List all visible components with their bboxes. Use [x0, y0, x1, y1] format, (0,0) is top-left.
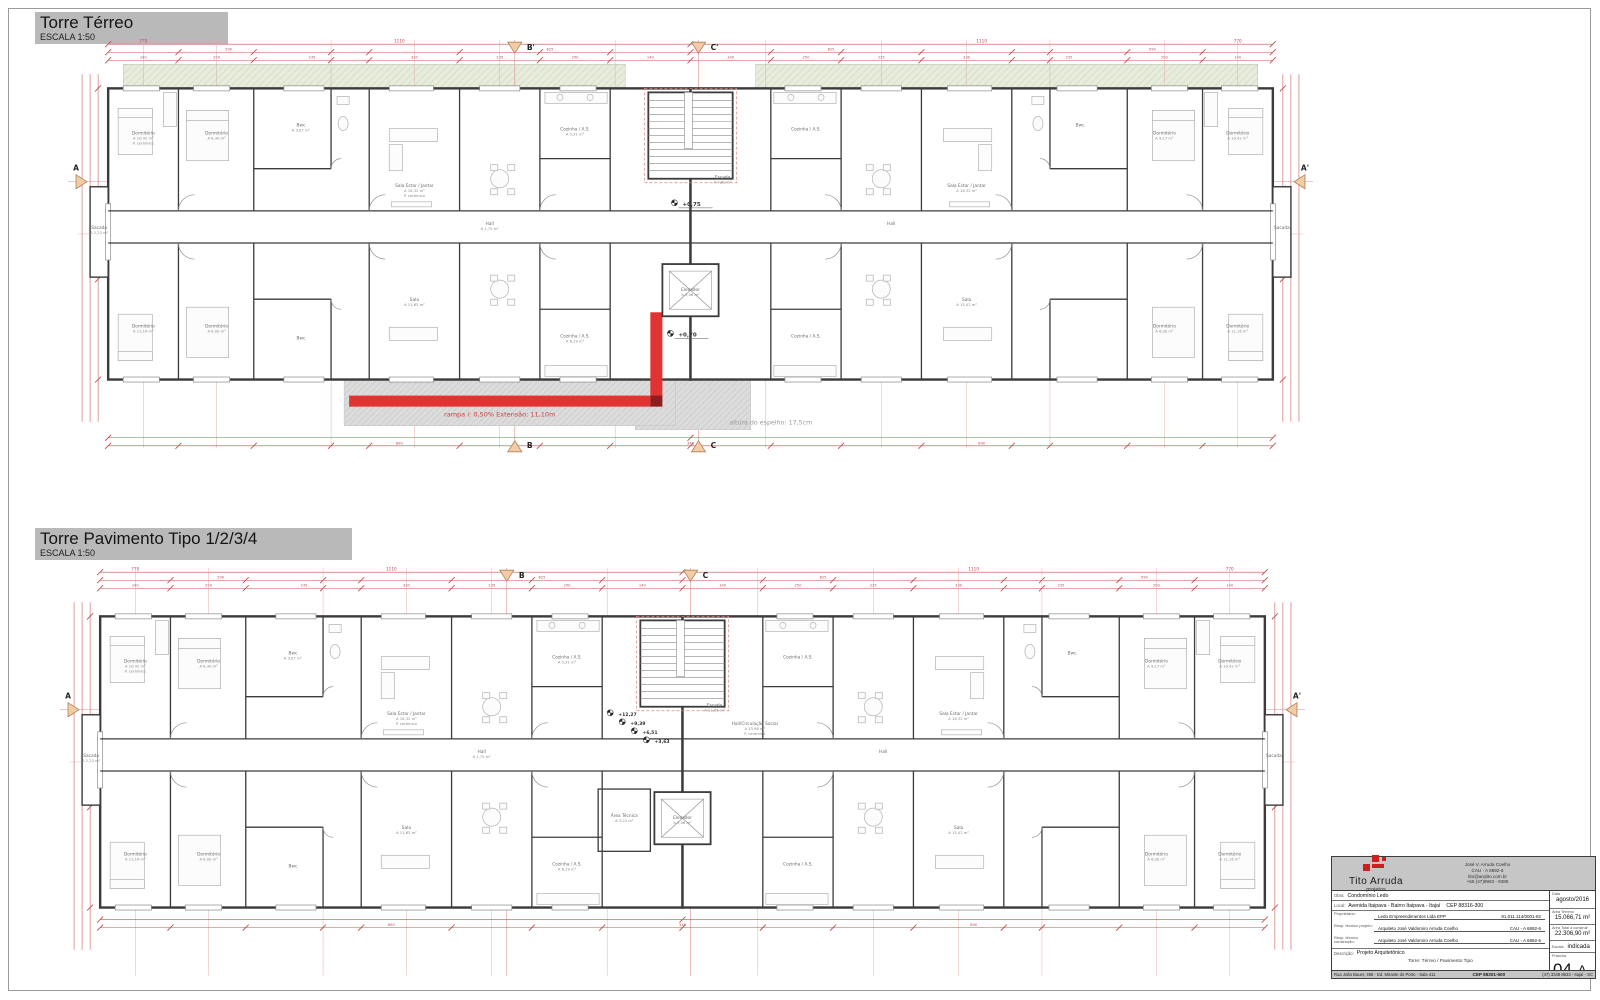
tipo-plan-drawing: Escada A 11,95 m² Hall/Circulação Social…: [60, 566, 1305, 983]
section-letter: A: [65, 692, 71, 701]
scale-label: Escala:: [1552, 945, 1564, 949]
sheet-number-cell: Prancha 04deA: [1550, 953, 1595, 983]
lot-area-cell: Área Terreno 15.066,71 m²: [1550, 909, 1595, 925]
section-letter: A': [1293, 692, 1301, 701]
sheet-content: Torre: Térreo / Pavimento Tipo: [1332, 959, 1549, 964]
section-letter: C: [703, 571, 709, 580]
resp-construcao-cau: CAU - A 6892-6: [1510, 938, 1541, 943]
local-cep: CEP 88316-300: [1446, 903, 1483, 909]
title-block: Tito Arruda projetos José V. Arruda Coel…: [1331, 856, 1596, 979]
proprietario-label: Proprietário:: [1334, 912, 1374, 917]
title-block-footer: Rua João Bauer, 466 - Ed. Mirante do Por…: [1332, 970, 1595, 978]
lot-area-label: Área Terreno: [1552, 910, 1593, 914]
proprietario-cnpj: 81.011.114/0001-82: [1501, 914, 1541, 919]
level-annotation: +6,51: [642, 730, 657, 736]
descricao-value: Projeto Arquitetônico: [1357, 950, 1405, 956]
scale-value: indicada: [1567, 944, 1589, 950]
espelho-note: altura do espelho: 17,5cm: [729, 420, 812, 427]
architect-contact: José V. Arruda Coelho CAU - A 6892-6 tit…: [1420, 862, 1595, 884]
resp-construcao-label: Resp. técnico construção:: [1334, 936, 1374, 946]
ramp-note: rampa i: 0,50% Extensão: 11,10m: [444, 411, 555, 419]
resp-projeto-cau: CAU - A 6892-6: [1510, 926, 1541, 931]
section-letter: C': [711, 43, 719, 52]
finish-label: P. cerâmico: [744, 732, 766, 736]
local-row: Local: Avenida Itaipava - Bairro Itaipav…: [1332, 901, 1549, 911]
date-value: agosto/2016: [1552, 897, 1593, 903]
resp-projeto-name: Arquiteto José Valdomiro Arruda Coelho: [1378, 926, 1458, 931]
office-phone: (47) 3348 8633 - Itajaí - SC: [1542, 972, 1593, 977]
local-label: Local:: [1334, 903, 1345, 908]
level-annotation: +0,70: [678, 332, 696, 338]
section-letter: A': [1301, 164, 1309, 173]
sheet-number-label: Prancha: [1552, 954, 1593, 958]
area-label: A 3,96 m²: [681, 293, 700, 297]
area-label: A 3,22 m²: [615, 819, 634, 823]
level-annotation: +0,75: [682, 202, 700, 208]
obra-row: Obra: Condomínio Ledo: [1332, 891, 1549, 901]
office-cep: CEP 88301-500: [1473, 972, 1506, 977]
area-label: A 3,96 m²: [673, 821, 692, 825]
section-letter: A: [73, 164, 79, 173]
area-label: A 13,98 m²: [744, 727, 765, 731]
level-annotation: +9,39: [630, 721, 645, 727]
terreo-plan-drawing: 1110 1110 770 770 590 625 625 590 140 25…: [68, 38, 1313, 455]
proprietario-name: Ledo Empreendimentos Ltda EPP: [1378, 914, 1446, 919]
resp-projeto-label: Resp. técnico projeto:: [1334, 924, 1374, 929]
section-letter: B: [527, 441, 533, 450]
proprietario-signature: Ledo Empreendimentos Ltda EPP 81.011.114…: [1374, 914, 1545, 920]
plan2-title-block: Torre Pavimento Tipo 1/2/3/4 ESCALA 1:50: [35, 528, 352, 560]
firm-logo: Tito Arruda projetos: [1332, 855, 1420, 893]
descricao-label: Descrição:: [1334, 951, 1354, 956]
description-block: Descrição: Projeto Arquitetônico Torre: …: [1332, 949, 1549, 970]
resp-construcao-name: Arquiteto José Valdomiro Arruda Coelho: [1378, 938, 1458, 943]
level-annotation: +12,27: [618, 712, 636, 718]
area-label: A 11,95 m²: [704, 709, 725, 713]
drawing-sheet: Torre Térreo ESCALA 1:50: [0, 0, 1600, 1000]
firm-name: Tito Arruda: [1332, 876, 1420, 887]
plan2-scale: ESCALA 1:50: [40, 548, 257, 558]
built-area-value: 22.306,90 m²: [1552, 931, 1593, 937]
local-value: Avenida Itaipava - Bairro Itaipava - Ita…: [1348, 903, 1440, 909]
responsibles-block: Proprietário: Resp. técnico projeto: Res…: [1332, 911, 1549, 949]
plan1-title: Torre Térreo: [40, 13, 133, 32]
level-annotation: +3,63: [654, 739, 669, 745]
room-label: Área Técnica: [611, 812, 638, 819]
scale-cell: Escala: indicada: [1550, 941, 1595, 953]
firm-logo-icon: [1363, 855, 1389, 871]
date-cell: Data agosto/2016: [1550, 891, 1595, 909]
built-area-label: Área Total a construir: [1552, 926, 1593, 930]
area-label: A 7,60 m²: [714, 181, 733, 185]
title-block-header: Tito Arruda projetos José V. Arruda Coel…: [1332, 857, 1595, 891]
section-letter: B': [527, 43, 535, 52]
plan2-title: Torre Pavimento Tipo 1/2/3/4: [40, 529, 257, 548]
obra-value: Condomínio Ledo: [1347, 893, 1388, 899]
date-label: Data: [1552, 892, 1593, 896]
contact-phone: +55 (47)9983 - 9385: [1420, 879, 1555, 885]
office-address: Rua João Bauer, 466 - Ed. Mirante do Por…: [1334, 972, 1435, 977]
obra-label: Obra:: [1334, 893, 1344, 898]
section-letter: C: [711, 441, 717, 450]
built-area-cell: Área Total a construir 22.306,90 m²: [1550, 925, 1595, 941]
lot-area-value: 15.066,71 m²: [1552, 915, 1593, 921]
resp-projeto-signature: Arquiteto José Valdomiro Arruda Coelho C…: [1374, 926, 1545, 932]
section-letter: B: [519, 571, 525, 580]
resp-construcao-signature: Arquiteto José Valdomiro Arruda Coelho C…: [1374, 938, 1545, 944]
